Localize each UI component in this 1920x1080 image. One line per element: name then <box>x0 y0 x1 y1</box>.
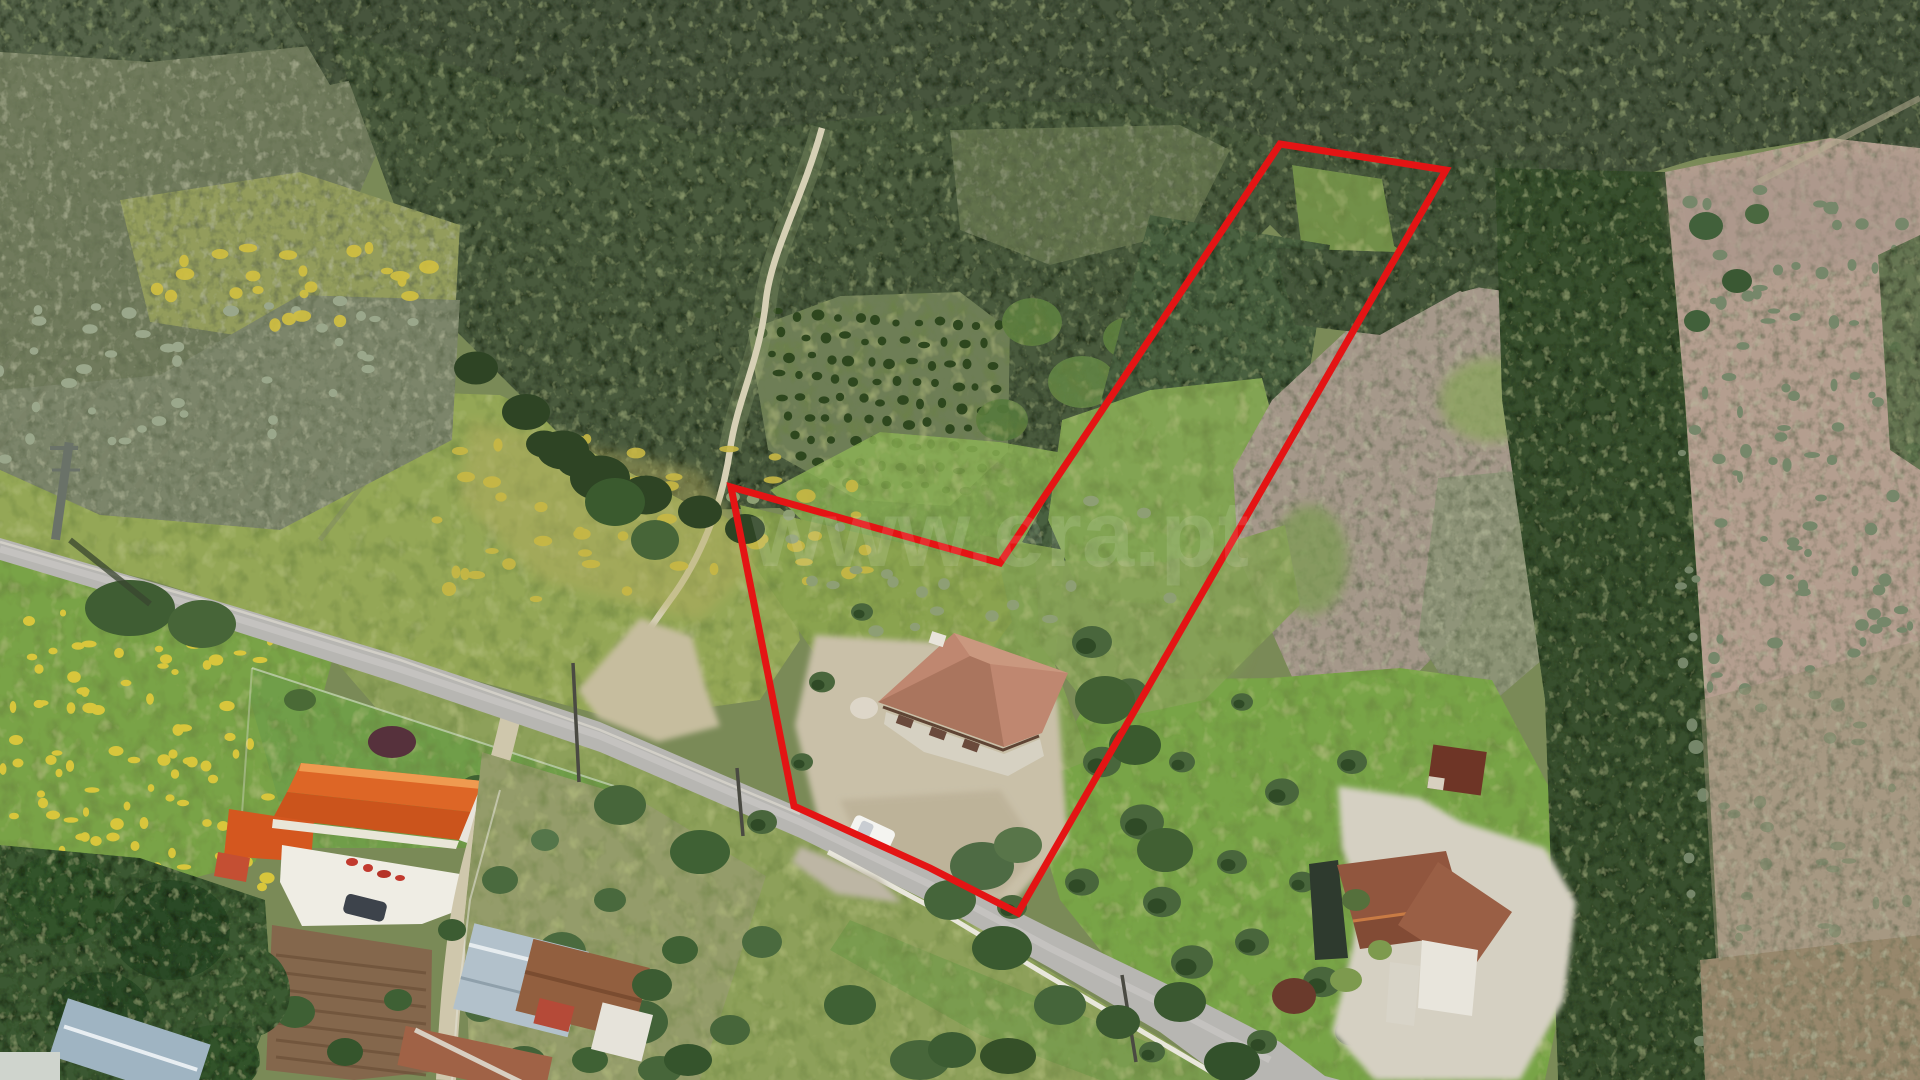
svg-text:www.era.pt: www.era.pt <box>750 481 1249 586</box>
